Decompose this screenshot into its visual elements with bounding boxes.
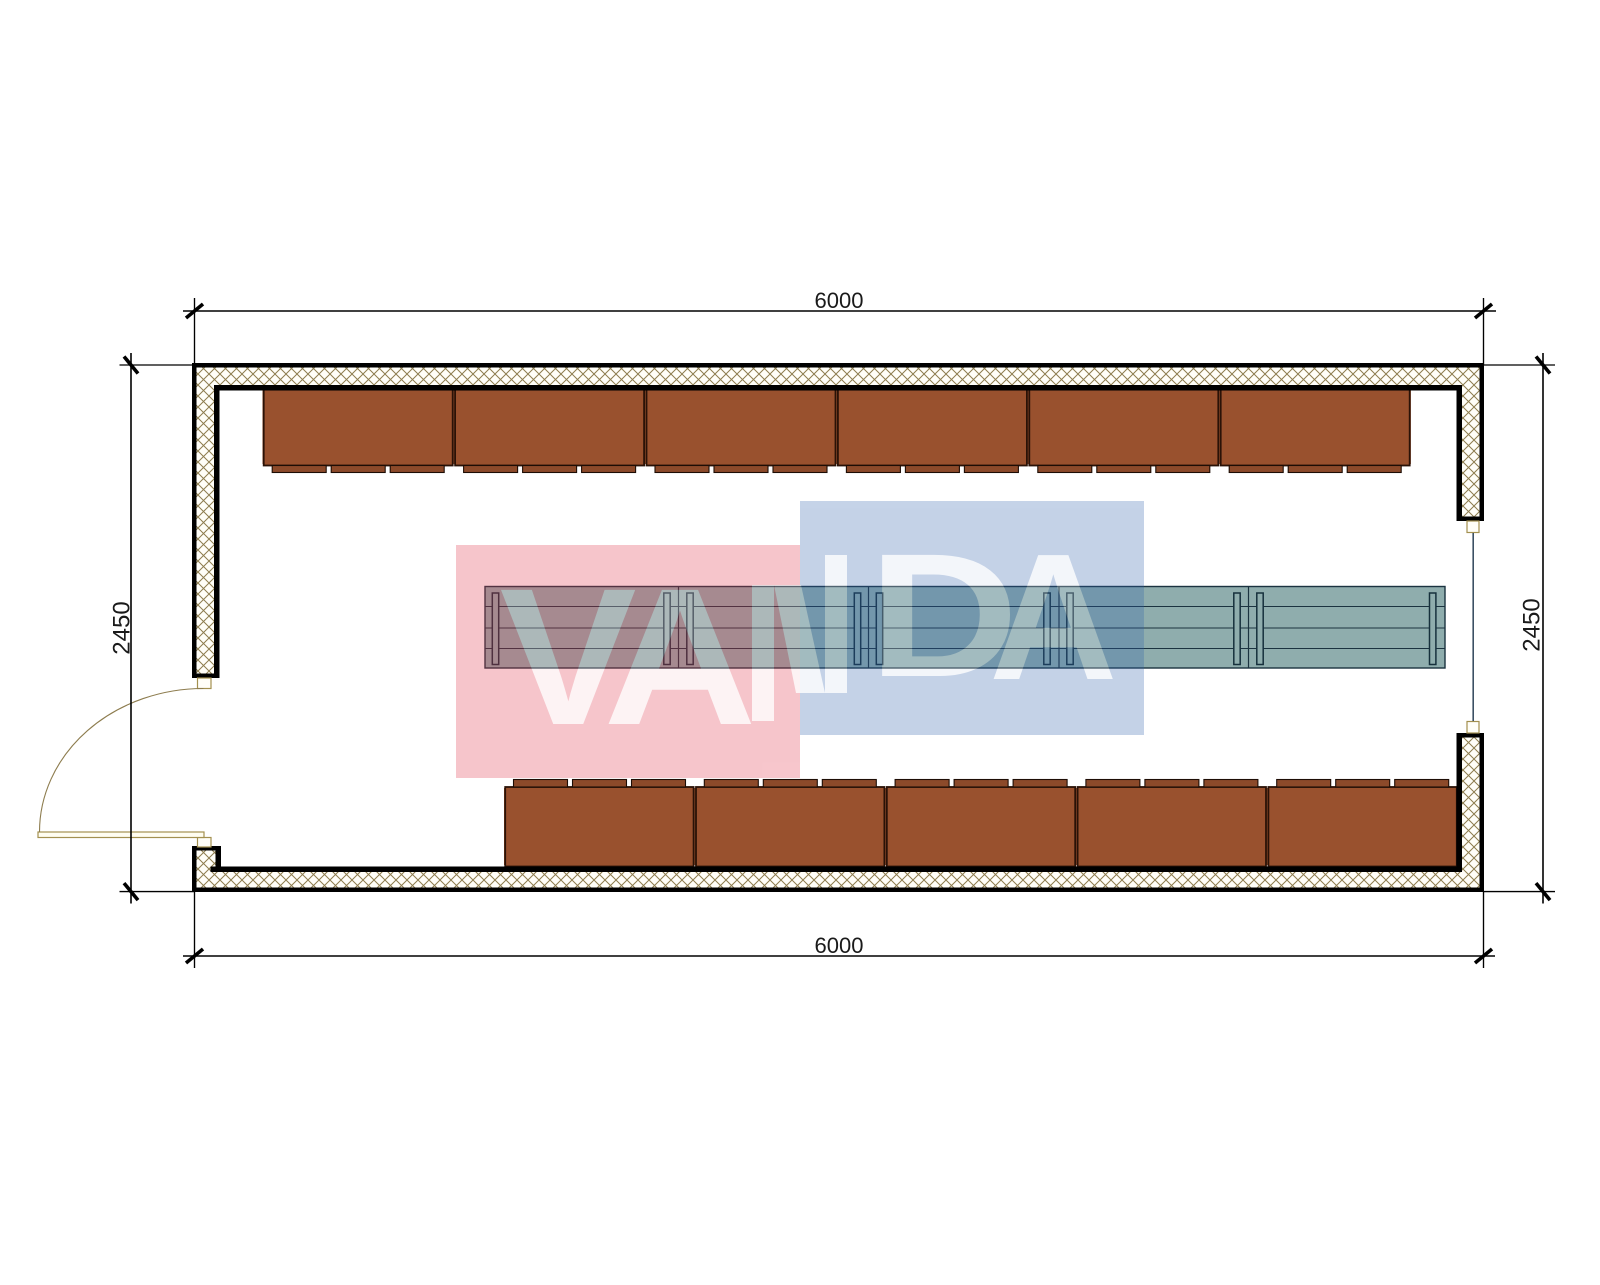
svg-text:2450: 2450 bbox=[109, 601, 136, 654]
svg-text:6000: 6000 bbox=[815, 288, 864, 313]
svg-text:A: A bbox=[989, 517, 1117, 718]
svg-text:2450: 2450 bbox=[1519, 598, 1546, 651]
svg-text:6000: 6000 bbox=[815, 933, 864, 958]
svg-text:A: A bbox=[603, 548, 757, 766]
